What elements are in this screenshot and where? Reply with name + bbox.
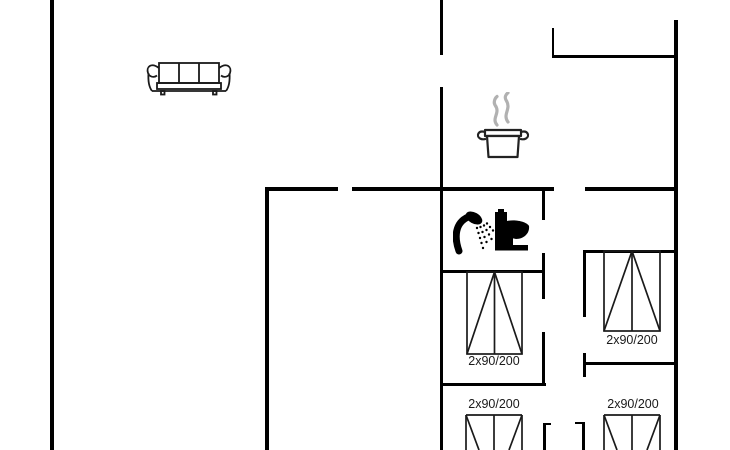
interior-wall [440,87,443,450]
double-bed [465,414,523,450]
sofa-icon [146,60,232,98]
toilet-icon [494,209,530,253]
interior-wall [583,353,586,377]
bed-size-label: 2x90/200 [587,334,677,347]
interior-wall [585,187,676,191]
interior-wall [352,187,554,191]
interior-wall [542,332,545,386]
interior-wall [583,362,676,365]
bed-size-label: 2x90/200 [449,398,539,411]
floorplan: 2x90/200 2x90/200 2x90/200 2x90/200 [0,0,730,450]
double-bed [466,271,523,355]
bed-size-label: 2x90/200 [588,398,678,411]
outer-wall-right [674,20,678,450]
interior-wall [543,423,546,450]
interior-wall [542,253,545,299]
interior-wall [542,190,545,220]
bed-size-label: 2x90/200 [449,355,539,368]
interior-wall [552,55,676,58]
outer-wall-left [50,0,54,450]
interior-wall [552,28,554,57]
interior-wall [440,383,546,386]
cooking-pot-icon [476,92,530,160]
door-jamb-tick [575,422,582,424]
interior-wall [440,0,443,55]
steam-icon [494,93,508,125]
interior-wall [583,251,586,317]
interior-wall [266,187,338,191]
double-bed [603,250,661,332]
door-jamb-tick [545,423,551,425]
double-bed [603,414,661,450]
interior-wall [582,422,585,450]
shower-icon [453,209,497,255]
interior-wall [265,187,269,450]
